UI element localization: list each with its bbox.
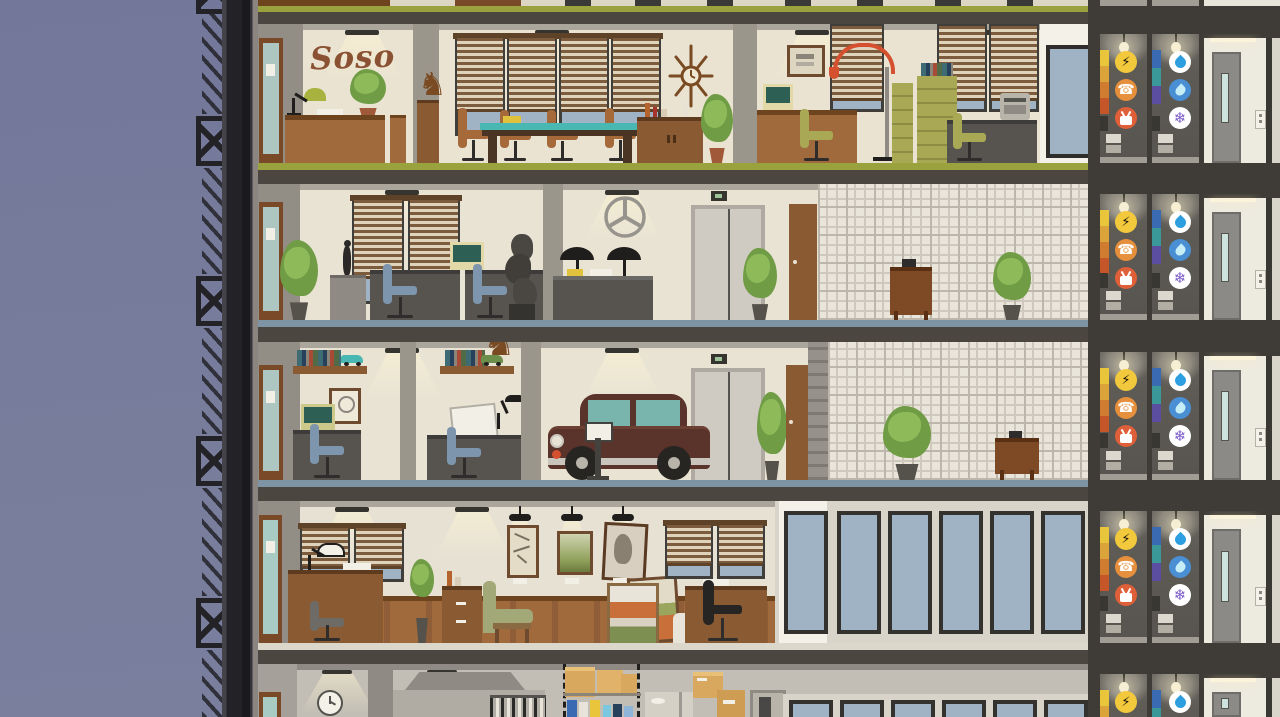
floor-slab [230, 650, 1088, 664]
side-cabinet [890, 267, 932, 320]
climate-icon[interactable]: ❄ [1169, 425, 1191, 447]
framed-picture [787, 45, 825, 77]
power-closet[interactable]: ⚡ ☎ [1100, 352, 1147, 474]
curtain-window [1041, 511, 1085, 634]
power-closet[interactable]: ⚡ ☎ [1100, 194, 1147, 314]
service-floor-band: ⚡ ☎ ❄ [1088, 194, 1280, 320]
electricity-icon[interactable]: ⚡ [1115, 369, 1137, 391]
plumbing-closet[interactable] [1152, 674, 1199, 717]
office-chair [447, 427, 481, 480]
framed-portrait [602, 522, 649, 582]
curtain-window [891, 700, 935, 717]
elevator-lobby [1204, 38, 1280, 163]
executive-chair [703, 580, 743, 643]
phone-icon[interactable]: ☎ [1115, 397, 1137, 419]
elevator-door[interactable] [1272, 198, 1280, 320]
service-door[interactable] [1212, 52, 1241, 163]
water-icon[interactable] [1169, 369, 1191, 391]
window-blinds [717, 523, 765, 579]
papers [590, 269, 612, 276]
electricity-icon[interactable]: ⚡ [1115, 51, 1137, 73]
curtain-window [888, 511, 932, 634]
wall-shelf [293, 366, 367, 374]
entry-door[interactable] [259, 692, 281, 717]
horse-statue: ♞ [483, 342, 515, 362]
cable-tv-icon[interactable] [1115, 107, 1137, 129]
curtain-window [990, 511, 1034, 634]
window-blinds [665, 523, 713, 579]
phone-icon[interactable]: ☎ [1115, 239, 1137, 261]
floor-slab [230, 487, 1088, 501]
floor-accent [255, 320, 1088, 327]
curtain-window [939, 511, 983, 634]
closet-floor-sliver [1100, 0, 1147, 6]
game-viewport: Soso ♞ [0, 0, 1280, 717]
floor-slab [230, 327, 1088, 342]
elevator-door[interactable] [1272, 678, 1280, 717]
floor-accent [255, 480, 1088, 487]
label-plaque [565, 578, 579, 584]
bottle [683, 101, 688, 117]
gas-icon[interactable] [1169, 239, 1191, 261]
curtain-window [784, 511, 828, 634]
shelf-books [297, 350, 341, 366]
service-floor-band: ⚡ ☎ ❄ [1088, 511, 1280, 643]
armchair [483, 581, 537, 643]
phone-icon[interactable]: ☎ [1115, 556, 1137, 578]
plumbing-closet[interactable]: ❄ [1152, 511, 1199, 637]
interior-door[interactable] [786, 365, 808, 480]
framed-landscape [557, 531, 593, 575]
entry-door[interactable] [259, 38, 283, 163]
glass [661, 109, 667, 117]
bottle [447, 571, 452, 586]
service-floor-band: ⚡ ☎ [1088, 674, 1280, 717]
file-cabinet [892, 83, 913, 163]
elevator-indicator [711, 354, 727, 364]
phone-icon[interactable]: ☎ [1115, 79, 1137, 101]
gas-icon[interactable] [1169, 556, 1191, 578]
office-chair [383, 264, 417, 320]
power-closet[interactable]: ⚡ ☎ [1100, 34, 1147, 157]
closet-floor-sliver [1152, 0, 1199, 6]
elevator-call-button[interactable] [1255, 110, 1266, 129]
interior-door[interactable] [789, 204, 817, 320]
elevator-call-button[interactable] [1255, 428, 1266, 447]
wall-clock [317, 690, 343, 716]
kitchen-hood [405, 672, 525, 690]
curtain-window [789, 700, 833, 717]
curtain-window [993, 700, 1037, 717]
classic-car [548, 394, 710, 480]
arc-floor-lamp [833, 43, 889, 163]
wall-shelf [440, 366, 514, 374]
elevator-call-button[interactable] [1255, 270, 1266, 289]
floor-accent [255, 163, 1088, 170]
desktop-computer [763, 84, 793, 110]
label-plaque [513, 578, 527, 584]
cable-tv-icon[interactable] [1115, 267, 1137, 289]
plumbing-closet[interactable]: ❄ [1152, 352, 1199, 474]
cable-tv-icon[interactable] [1115, 584, 1137, 606]
office-chair [473, 264, 507, 320]
palm-plant [743, 248, 777, 320]
elevator-lobby [1204, 678, 1280, 717]
cardboard-boxes [693, 672, 745, 717]
climate-icon[interactable]: ❄ [1169, 267, 1191, 289]
stacked-books [921, 63, 953, 76]
potted-plant [883, 406, 931, 480]
stone-column [808, 342, 828, 480]
elevator-indicator [711, 191, 727, 201]
entry-door[interactable] [259, 365, 283, 480]
elevator-lobby [1204, 515, 1280, 643]
floor-accent [255, 643, 1088, 650]
potted-plant [993, 252, 1031, 320]
floor-kitchen-storage[interactable] [255, 664, 1088, 717]
lobby-floor-sliver [1204, 0, 1280, 6]
wallpaper-room [828, 342, 1088, 480]
elevator-door[interactable] [1272, 38, 1280, 163]
electricity-icon[interactable]: ⚡ [1115, 528, 1137, 550]
water-icon[interactable] [1169, 211, 1191, 233]
service-floor-band: ⚡ ☎ ❄ [1088, 34, 1280, 163]
partition-column [368, 664, 393, 717]
three-pointed-star-emblem [603, 194, 647, 244]
storage-rack [563, 664, 641, 717]
glass [455, 577, 461, 586]
curtain-window [837, 511, 881, 634]
conference-table [480, 123, 640, 163]
entry-door[interactable] [259, 515, 282, 643]
power-closet[interactable]: ⚡ ☎ [1100, 674, 1147, 717]
side-cabinet [390, 115, 406, 163]
floor-car-showroom[interactable]: ♞ [255, 342, 1088, 487]
water-icon[interactable] [1169, 528, 1191, 550]
office-chair [800, 109, 833, 163]
refrigerator [645, 692, 693, 717]
bottle [653, 107, 657, 117]
plant [350, 69, 386, 119]
papers [343, 563, 371, 570]
floor-upper-sliver[interactable] [255, 0, 1088, 12]
wallpaper-room [818, 184, 1088, 320]
sculpture-pedestal [417, 100, 439, 163]
drinks-chest [442, 586, 482, 647]
elevator-lobby [1204, 198, 1280, 320]
hanging-utensils [490, 698, 546, 717]
floor-soso-office[interactable]: Soso ♞ [255, 24, 1088, 170]
service-door[interactable] [1212, 692, 1241, 717]
office-chair [953, 113, 986, 163]
elevator-call-button[interactable] [1255, 587, 1266, 606]
bottle [645, 103, 650, 117]
floor-slab [230, 170, 1088, 184]
service-door[interactable] [1212, 212, 1241, 320]
elevator-door[interactable] [1272, 356, 1280, 480]
floor-gallery-office[interactable] [255, 501, 1088, 650]
water-icon[interactable] [1169, 691, 1191, 713]
floor-slab [230, 12, 1088, 24]
leaning-canvas [607, 583, 659, 647]
desk-tray [567, 269, 583, 276]
horse-sculpture: ♞ [418, 68, 447, 100]
thin-plant [410, 559, 434, 643]
office-chair [310, 601, 344, 643]
curtain-window [840, 700, 884, 717]
reception-desk [553, 276, 653, 324]
electricity-icon[interactable]: ⚡ [1115, 211, 1137, 233]
service-door[interactable] [750, 690, 786, 717]
climate-icon[interactable]: ❄ [1169, 584, 1191, 606]
elevator-lobby [1204, 356, 1280, 480]
gas-icon[interactable] [1169, 397, 1191, 419]
climate-icon[interactable]: ❄ [1169, 107, 1191, 129]
service-floor-band: ⚡ ☎ ❄ [1088, 352, 1280, 480]
scaffold-mast [222, 0, 250, 717]
gas-icon[interactable] [1169, 79, 1191, 101]
office-chair [310, 424, 344, 480]
curtain-window [942, 700, 986, 717]
elevator-door[interactable] [1272, 515, 1280, 643]
plant [701, 94, 733, 163]
partition-column [400, 342, 416, 480]
tall-plant [280, 240, 318, 320]
service-door[interactable] [1212, 529, 1241, 643]
plumbing-closet[interactable]: ❄ [1152, 34, 1199, 157]
table-phone [503, 116, 521, 123]
cable-tv-icon[interactable] [1115, 425, 1137, 447]
typewriter [1000, 93, 1030, 120]
interior-window [1046, 45, 1088, 158]
framed-sketch [507, 525, 539, 578]
electricity-icon[interactable]: ⚡ [1115, 691, 1137, 713]
side-table [995, 438, 1039, 480]
bar-cabinet [637, 117, 703, 167]
curtain-window [1044, 700, 1088, 717]
water-icon[interactable] [1169, 51, 1191, 73]
reception-desk [285, 115, 385, 168]
plumbing-closet[interactable]: ❄ [1152, 194, 1199, 314]
partition-column [733, 24, 757, 163]
power-closet[interactable]: ⚡ ☎ [1100, 511, 1147, 637]
partition-column [521, 342, 541, 480]
abstract-sculpture [503, 234, 543, 320]
tall-plant [757, 392, 787, 480]
floor-auto-office[interactable] [255, 184, 1088, 327]
shelf-books [445, 350, 485, 366]
low-cabinet [330, 275, 366, 323]
service-door[interactable] [1212, 370, 1241, 480]
